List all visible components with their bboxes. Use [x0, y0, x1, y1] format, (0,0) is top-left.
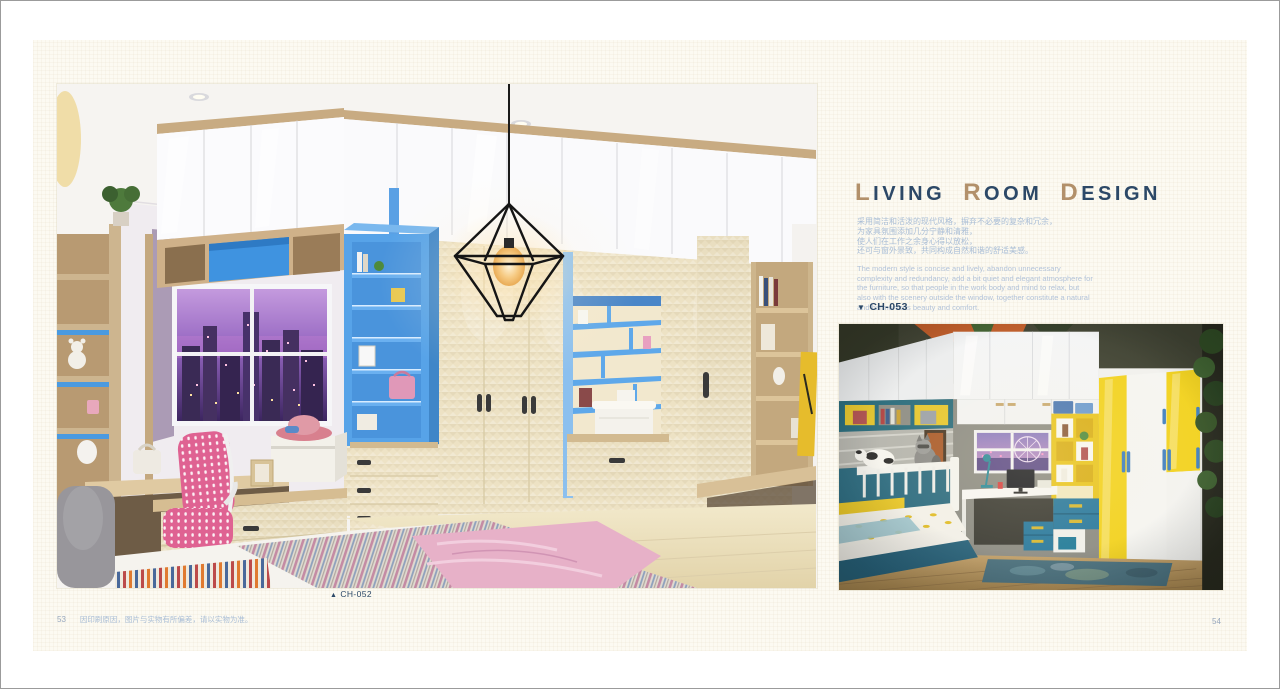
page-title: LIVING ROOM DESIGN — [855, 179, 1170, 207]
kids-room-illustration — [839, 324, 1223, 590]
intro-chinese-line: 采用简洁和活泼的现代风格，摒弃不必要的复杂和冗余， — [857, 217, 1057, 227]
title-rest: IVING — [873, 183, 945, 205]
right-cabinet-desk — [697, 224, 817, 514]
caption-up-triangle-icon: ▲ — [330, 592, 337, 599]
print-disclaimer: 因印刷原因，图片与实物有所偏差，请以实物为准。 — [80, 614, 253, 625]
intro-chinese-line: 为家具氛围添加几分宁静和清雅， — [857, 227, 1057, 237]
city-window — [172, 284, 332, 426]
title-word: LIVING — [855, 183, 945, 205]
kids-bedroom-illustration — [57, 84, 817, 588]
intro-chinese-line: 使人们在工作之余身心得以放松， — [857, 237, 1057, 247]
intro-chinese-line: 还可与窗外景致，共同构成自然和谐的舒适美感。 — [857, 246, 1057, 256]
photo-ch-053 — [839, 324, 1223, 590]
photo-ch-052 — [57, 84, 817, 588]
label-down-triangle-icon: ▼ — [857, 303, 865, 312]
intro-chinese: 采用简洁和活泼的现代风格，摒弃不必要的复杂和冗余， 为家具氛围添加几分宁静和清雅… — [857, 217, 1057, 256]
title-initial: R — [963, 179, 984, 206]
page-number-right: 54 — [1212, 617, 1221, 626]
caption-code: CH-052 — [340, 589, 372, 599]
upper-cabinets-left — [157, 108, 344, 240]
title-initial: L — [855, 179, 873, 206]
page-number-left: 53 — [57, 615, 66, 624]
title-rest: OOM — [984, 183, 1042, 205]
title-initial: D — [1060, 179, 1081, 206]
photo-label-ch-053: ▼CH-053 — [857, 301, 908, 313]
footer-left: 53 因印刷原因，图片与实物有所偏差，请以实物为准。 — [57, 614, 252, 625]
title-word: DESIGN — [1060, 183, 1161, 205]
title-rest: ESIGN — [1081, 183, 1161, 205]
label-code: CH-053 — [869, 301, 908, 313]
photo-caption-ch-052: ▲CH-052 — [330, 589, 372, 599]
title-word: ROOM — [963, 183, 1042, 205]
grey-chair — [57, 486, 115, 588]
